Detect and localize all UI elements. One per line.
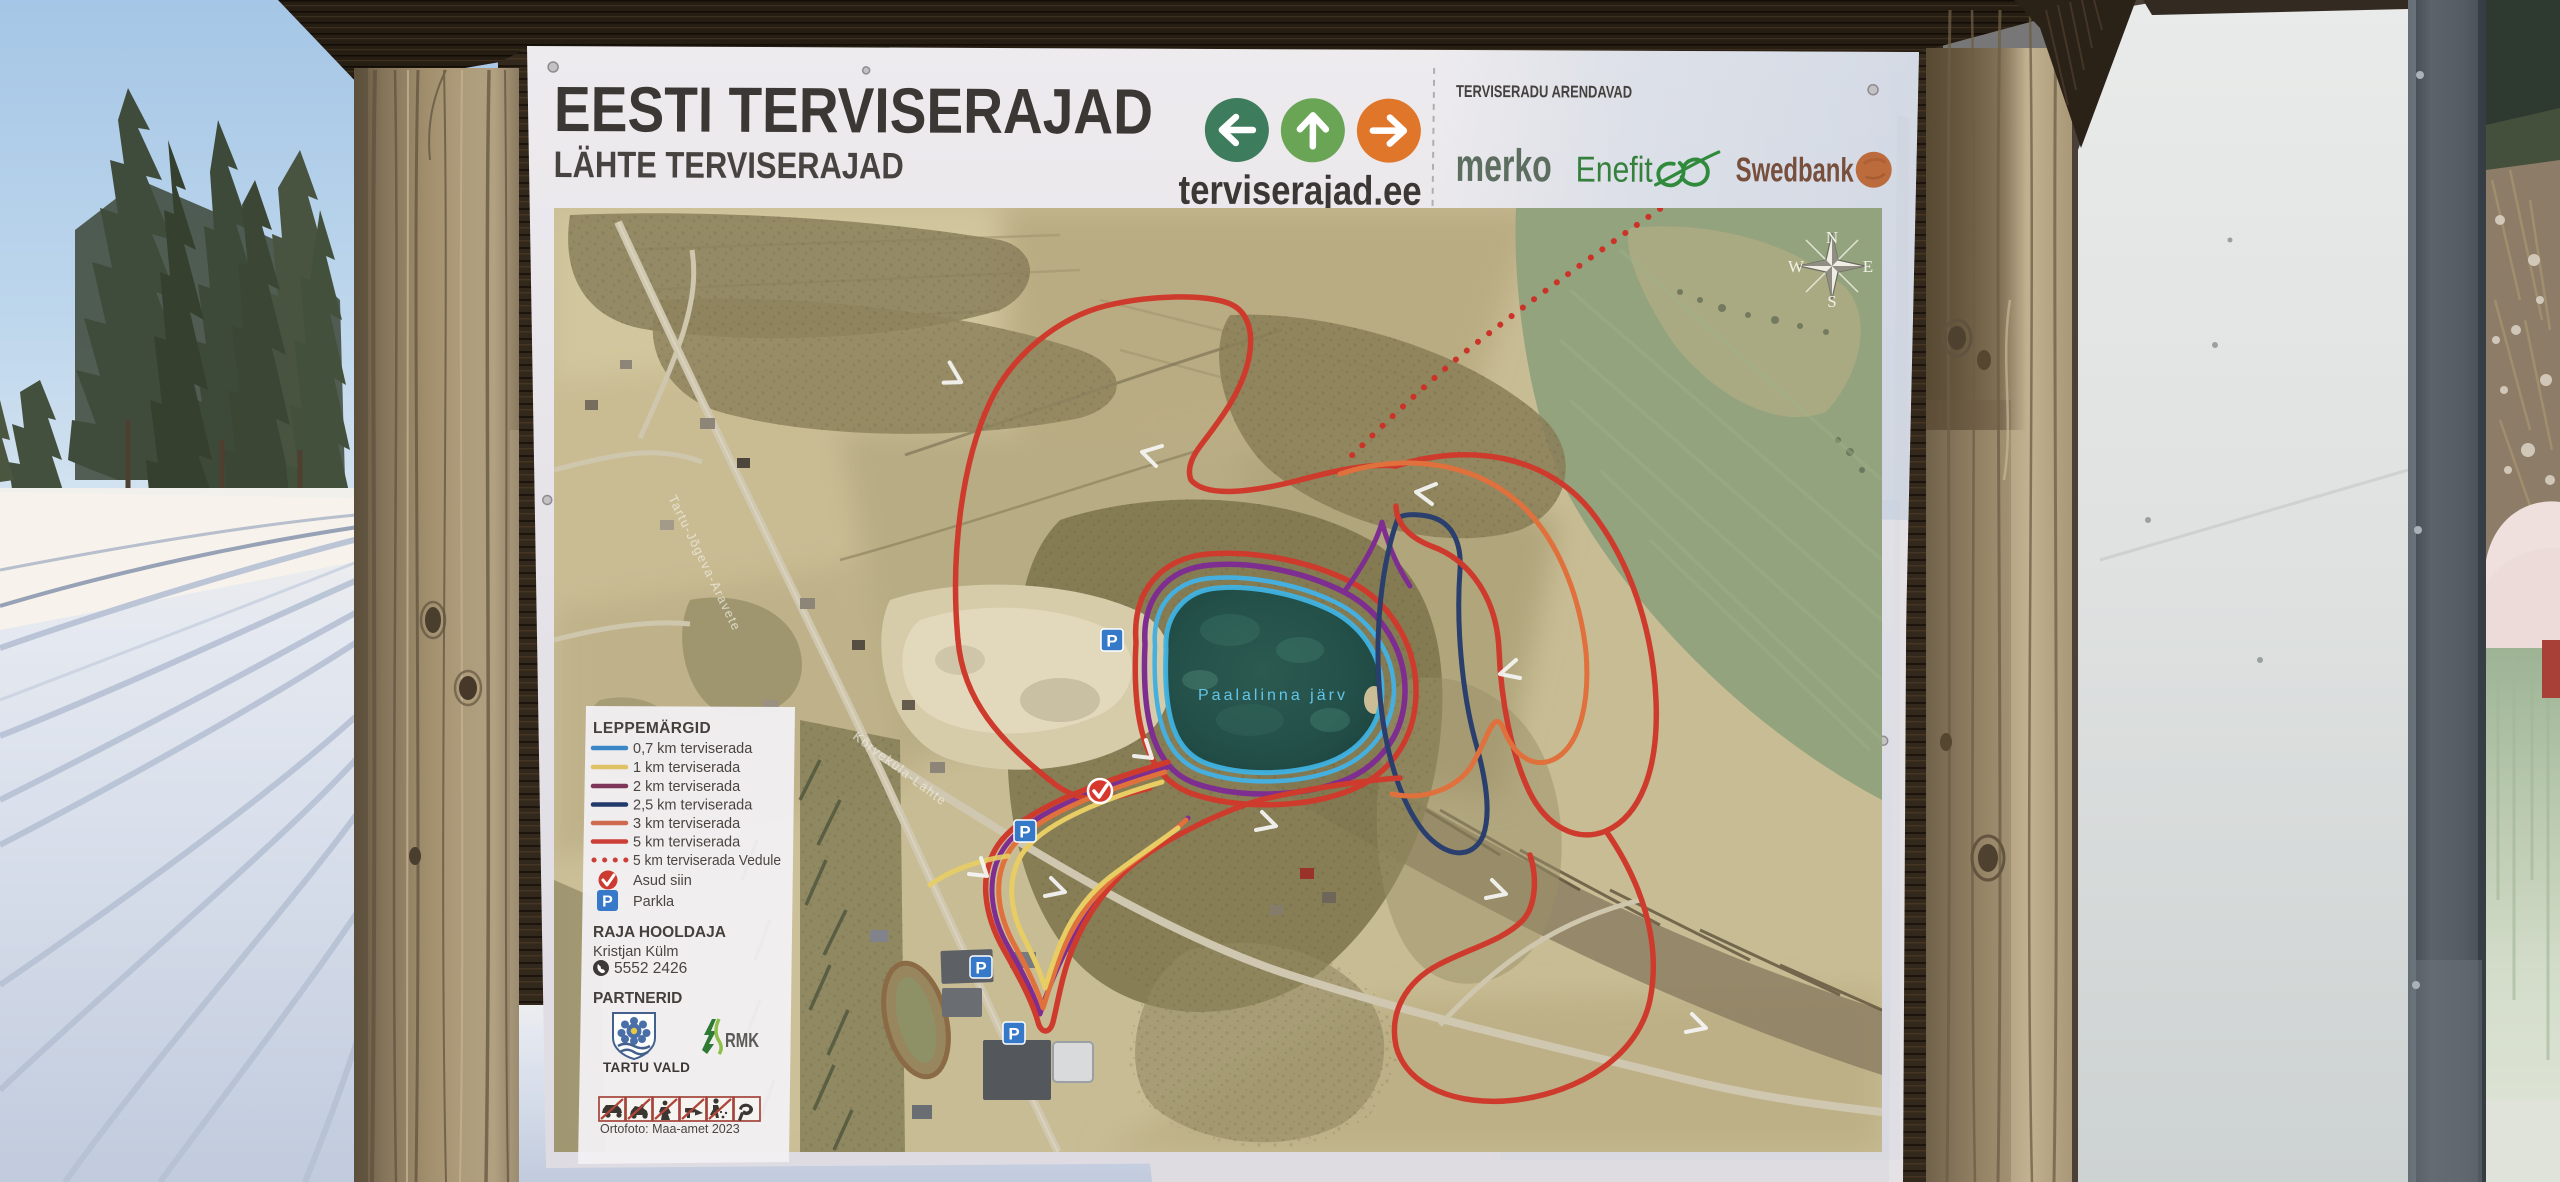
svg-text:terviserajad.ee: terviserajad.ee (1179, 167, 1422, 214)
svg-text:P: P (1019, 823, 1030, 842)
svg-text:0,7 km terviserada: 0,7 km terviserada (633, 741, 753, 757)
svg-text:Swedbank: Swedbank (1736, 151, 1854, 190)
svg-text:5 km terviserada Vedule: 5 km terviserada Vedule (633, 853, 781, 869)
svg-text:LÄHTE TERVISERAJAD: LÄHTE TERVISERAJAD (554, 144, 904, 187)
svg-text:LEPPEMÄRGID: LEPPEMÄRGID (593, 720, 711, 737)
svg-text:2 km terviserada: 2 km terviserada (633, 779, 741, 795)
svg-text:S: S (1827, 292, 1836, 311)
svg-text:merko: merko (1456, 139, 1552, 191)
svg-text:PARTNERID: PARTNERID (593, 990, 682, 1007)
svg-text:5552 2426: 5552 2426 (614, 960, 687, 977)
svg-text:Ortofoto: Maa-amet 2023: Ortofoto: Maa-amet 2023 (600, 1122, 740, 1136)
svg-text:EESTI TERVISERAJAD: EESTI TERVISERAJAD (554, 73, 1153, 148)
svg-text:RMK: RMK (725, 1030, 759, 1052)
svg-text:E: E (1863, 257, 1873, 276)
svg-text:Enefit: Enefit (1576, 148, 1653, 189)
svg-text:P: P (1106, 632, 1117, 651)
svg-text:P: P (1008, 1025, 1019, 1044)
svg-text:2,5 km terviserada: 2,5 km terviserada (633, 798, 753, 814)
svg-text:Paalalinna järv: Paalalinna järv (1198, 687, 1348, 704)
svg-text:P: P (602, 894, 613, 911)
svg-text:TARTU VALD: TARTU VALD (603, 1060, 690, 1075)
svg-text:W: W (1788, 257, 1805, 276)
svg-text:TERVISERADU ARENDAVAD: TERVISERADU ARENDAVAD (1456, 82, 1632, 102)
svg-text:3 km terviserada: 3 km terviserada (633, 816, 741, 832)
svg-text:P: P (975, 959, 986, 978)
svg-text:5 km terviserada: 5 km terviserada (633, 835, 741, 851)
svg-text:Parkla: Parkla (633, 894, 675, 910)
svg-text:1 km terviserada: 1 km terviserada (633, 760, 741, 776)
svg-text:N: N (1826, 228, 1838, 247)
svg-text:Asud siin: Asud siin (633, 873, 692, 889)
svg-text:RAJA HOOLDAJA: RAJA HOOLDAJA (593, 924, 726, 941)
svg-text:Kristjan Külm: Kristjan Külm (593, 944, 678, 960)
